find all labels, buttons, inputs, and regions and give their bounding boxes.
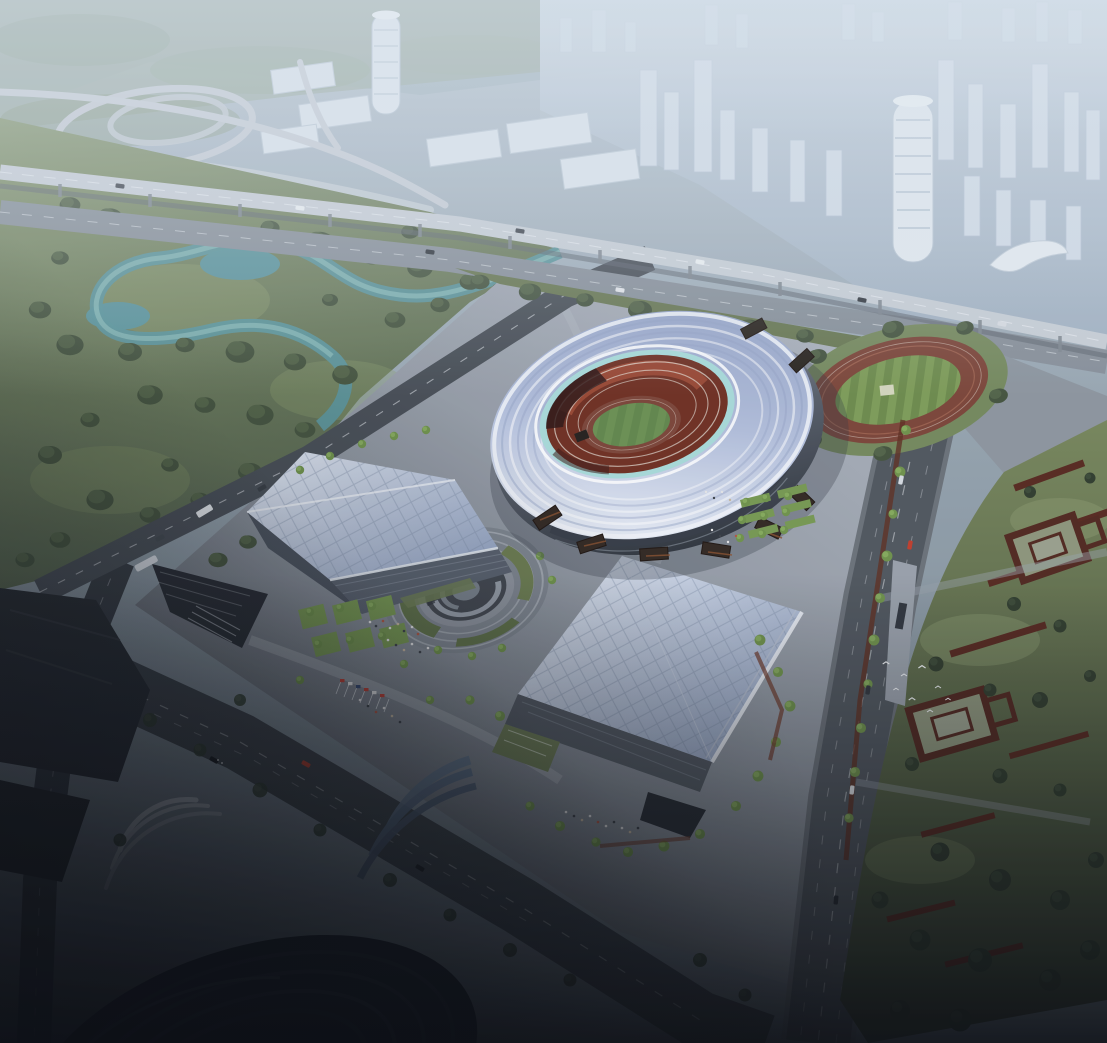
blue-tint <box>0 0 1107 1043</box>
scene: Aerial dusk rendering of a sports comple… <box>0 0 1107 1043</box>
